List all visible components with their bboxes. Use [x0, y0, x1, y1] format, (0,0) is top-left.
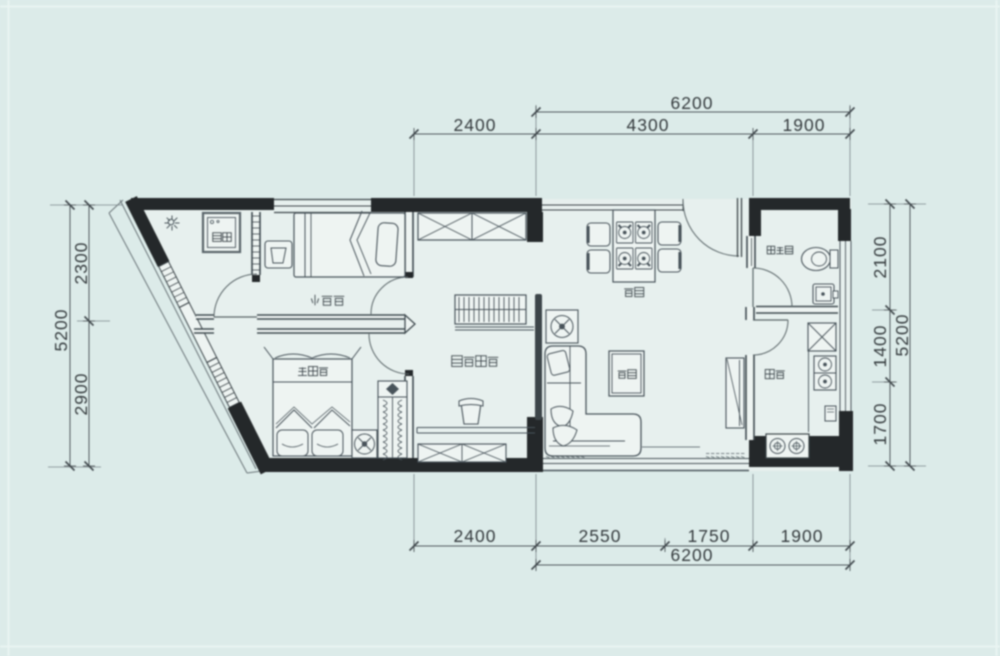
svg-text:2900: 2900 — [71, 373, 91, 416]
svg-text:1900: 1900 — [781, 526, 824, 546]
svg-text:1700: 1700 — [870, 403, 890, 446]
svg-text:1750: 1750 — [688, 526, 731, 546]
svg-text:5200: 5200 — [51, 309, 71, 352]
svg-text:6200: 6200 — [671, 93, 714, 113]
svg-text:2550: 2550 — [579, 526, 622, 546]
svg-text:2400: 2400 — [454, 526, 497, 546]
svg-text:2300: 2300 — [71, 242, 91, 285]
svg-text:5200: 5200 — [892, 314, 912, 357]
svg-text:1900: 1900 — [783, 115, 826, 135]
svg-text:2400: 2400 — [454, 115, 497, 135]
svg-text:2100: 2100 — [870, 236, 890, 279]
svg-text:6200: 6200 — [671, 545, 714, 565]
svg-text:1400: 1400 — [870, 325, 890, 368]
svg-text:4300: 4300 — [627, 115, 670, 135]
